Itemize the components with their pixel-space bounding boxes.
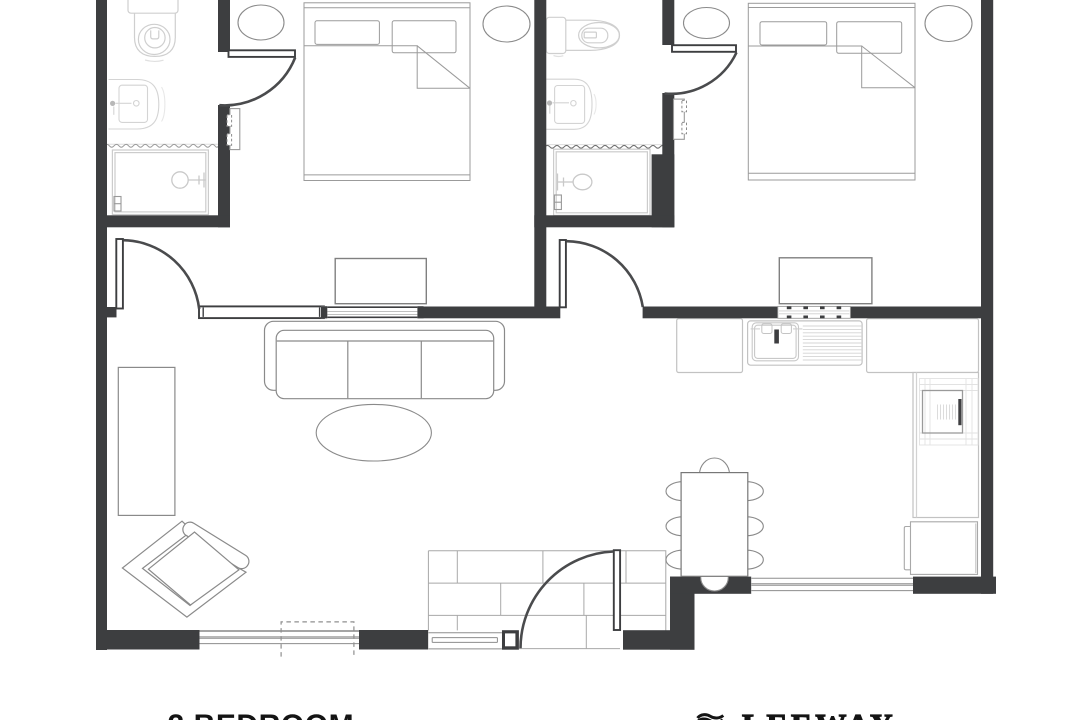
svg-text:LEEWAY: LEEWAY [742, 707, 896, 720]
svg-text:2 BEDROOM: 2 BEDROOM [168, 709, 355, 720]
